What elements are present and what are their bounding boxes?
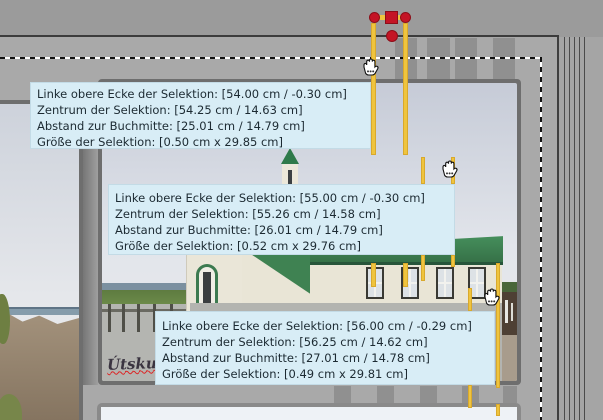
bottom-photo-stripe bbox=[377, 386, 394, 403]
fence-post bbox=[108, 304, 111, 332]
page-stack-line bbox=[574, 37, 575, 420]
tooltip-line: Abstand zur Buchmitte: [27.01 cm / 14.78… bbox=[162, 350, 488, 366]
guide-line[interactable] bbox=[421, 255, 425, 281]
bottom-photo-stripe bbox=[503, 386, 517, 403]
photo-bottom[interactable] bbox=[97, 403, 521, 420]
fence-post bbox=[137, 304, 140, 332]
tooltip-line: Linke obere Ecke der Selektion: [56.00 c… bbox=[162, 318, 488, 334]
selection-handle-left[interactable] bbox=[369, 12, 380, 23]
tooltip-line: Größe der Selektion: [0.49 cm x 29.81 cm… bbox=[162, 366, 488, 382]
guide-line[interactable] bbox=[468, 385, 472, 408]
tooltip-line: Größe der Selektion: [0.50 cm x 29.85 cm… bbox=[37, 134, 364, 149]
drag-hand-cursor bbox=[361, 57, 385, 77]
guide-line[interactable] bbox=[421, 157, 425, 184]
sea bbox=[102, 283, 190, 290]
tooltip-line: Linke obere Ecke der Selektion: [55.00 c… bbox=[115, 190, 448, 206]
page-stack-line bbox=[569, 37, 570, 420]
selection-info-tooltip-2: Linke obere Ecke der Selektion: [55.00 c… bbox=[108, 184, 455, 255]
tooltip-line: Zentrum der Selektion: [54.25 cm / 14.63… bbox=[37, 102, 364, 118]
guide-line[interactable] bbox=[371, 263, 376, 287]
fence-post bbox=[122, 304, 125, 332]
drag-hand-cursor bbox=[440, 159, 464, 179]
guide-line[interactable] bbox=[496, 404, 500, 416]
sea-horizon bbox=[0, 307, 79, 309]
photo-caption-text[interactable]: Útsku bbox=[107, 354, 157, 374]
guide-line[interactable] bbox=[403, 23, 408, 155]
guide-line[interactable] bbox=[403, 263, 408, 287]
terrain bbox=[502, 335, 517, 381]
bottom-photo-stripe bbox=[420, 386, 437, 403]
photo-bottom-image bbox=[101, 407, 517, 420]
selection-info-tooltip-3: Linke obere Ecke der Selektion: [56.00 c… bbox=[155, 311, 495, 385]
tooltip-line: Zentrum der Selektion: [56.25 cm / 14.62… bbox=[162, 334, 488, 350]
steeple-roof bbox=[281, 148, 299, 164]
page-top-edge bbox=[0, 35, 559, 37]
photo-rocks-image bbox=[0, 104, 79, 420]
tooltip-line: Zentrum der Selektion: [55.26 cm / 14.58… bbox=[115, 206, 448, 222]
drag-hand-cursor bbox=[482, 287, 506, 307]
selection-info-tooltip-1: Linke obere Ecke der Selektion: [54.00 c… bbox=[30, 82, 371, 149]
guide-line[interactable] bbox=[451, 255, 455, 267]
white-post bbox=[511, 303, 513, 321]
page-right-edge bbox=[557, 37, 559, 420]
margin-guide-vertical bbox=[540, 57, 542, 420]
church-window bbox=[436, 267, 454, 299]
field bbox=[102, 290, 192, 304]
selection-handle-right[interactable] bbox=[400, 12, 411, 23]
tooltip-line: Abstand zur Buchmitte: [26.01 cm / 14.79… bbox=[115, 222, 448, 238]
guide-line[interactable] bbox=[371, 23, 376, 155]
guide-line[interactable] bbox=[468, 288, 472, 311]
selection-rotate-handle[interactable] bbox=[386, 30, 398, 42]
selection-handle-center[interactable] bbox=[385, 11, 398, 24]
tooltip-line: Linke obere Ecke der Selektion: [54.00 c… bbox=[37, 86, 364, 102]
margin-guide-horizontal bbox=[0, 57, 542, 59]
page-stack-line bbox=[584, 37, 585, 420]
page-stack-line bbox=[579, 37, 580, 420]
steeple-window bbox=[288, 170, 292, 184]
bottom-photo-stripe bbox=[334, 386, 351, 403]
guide-line[interactable] bbox=[496, 263, 500, 388]
tooltip-line: Abstand zur Buchmitte: [25.01 cm / 14.79… bbox=[37, 118, 364, 134]
page-stack-line bbox=[564, 37, 565, 420]
tooltip-line: Größe der Selektion: [0.52 cm x 29.76 cm… bbox=[115, 238, 448, 254]
editor-canvas: Útsku Linke obere Ecke der Selektion: [5… bbox=[0, 0, 603, 420]
